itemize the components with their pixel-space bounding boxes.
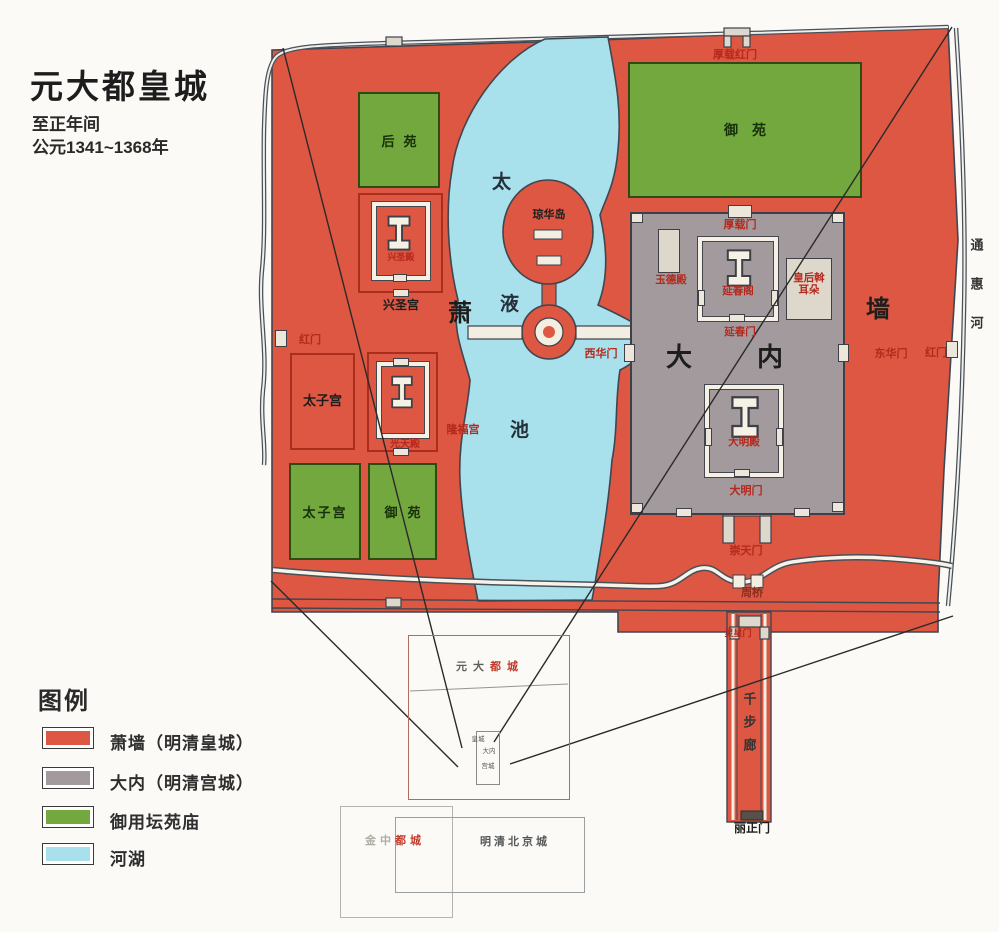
yanchun-side-gate xyxy=(771,290,778,306)
donghua-gate-label: 东华门 xyxy=(868,348,914,361)
danei-south-minor-gate xyxy=(676,508,692,517)
xihua-gate xyxy=(624,344,635,362)
inset-yuandadu-pre: 元大 xyxy=(456,661,490,673)
xiaoqiang-label-qiang: 墙 xyxy=(866,296,891,324)
lingxing-gate-label: 灵星门 xyxy=(716,628,760,638)
legend-swatch-xiaoqiang-fill xyxy=(46,731,90,745)
legend-label-danei: 大内（明清宫城） xyxy=(110,769,254,794)
danei-south-minor-gate xyxy=(794,508,810,517)
damingdian-hall-icon xyxy=(727,393,763,441)
houzai-gate xyxy=(728,205,752,218)
inset-huangcheng-label: 皇城 xyxy=(463,733,493,743)
tonghui-river-label: 通惠河 xyxy=(964,238,988,355)
danei-label-nei: 内 xyxy=(757,343,783,373)
danei-label-da: 大 xyxy=(666,343,692,373)
daming-gate-label: 大明门 xyxy=(722,485,770,498)
guangtiandian-hall-icon xyxy=(388,372,416,412)
hong-gate-west xyxy=(275,330,287,347)
yuyuan-north-label: 御苑 xyxy=(710,120,780,140)
zhou-bridge-label: 周桥 xyxy=(734,587,770,600)
inset-yuandadu-suf: 都城 xyxy=(490,661,524,673)
title-years: 公元1341~1368年 xyxy=(32,133,169,158)
legend-label-xiaoqiang: 萧墙（明清皇城） xyxy=(110,729,254,754)
xingsheng-inner-gate xyxy=(393,274,407,282)
yudedian-label: 玉德殿 xyxy=(650,274,692,286)
xingsheng-outer-gate xyxy=(393,289,409,297)
lake-label-tai: 太 xyxy=(492,172,511,194)
inset-yuandadu-label: 元大都城 xyxy=(440,658,540,674)
lake-label-ye: 液 xyxy=(500,294,519,316)
empress-ordo-label: 皇后斡耳朵 xyxy=(791,272,827,296)
daming-side-gate xyxy=(705,428,712,446)
south-wall-gate xyxy=(386,598,401,607)
hong-gate-west-label: 红门 xyxy=(292,334,328,347)
donghua-gate xyxy=(838,344,849,362)
taizigong-south-label: 太子宫 xyxy=(302,502,347,521)
legend-swatch-gardens xyxy=(42,806,94,828)
round-islet-center xyxy=(543,326,555,338)
hong-gate-east-label: 红门 xyxy=(918,347,954,360)
taizigong-north-label: 太子宫 xyxy=(303,394,342,409)
xingshenggong-label: 兴圣宫 xyxy=(375,299,427,313)
island-terrace xyxy=(537,256,561,265)
lake-label-chi: 池 xyxy=(510,420,529,442)
tonghui-river-text: 通惠河 xyxy=(967,238,986,355)
island-terrace xyxy=(534,230,562,239)
danei-corner-tower xyxy=(631,213,643,223)
legend-label-gardens: 御用坛苑庙 xyxy=(110,808,200,833)
legend-swatch-danei xyxy=(42,767,94,789)
houzai-hong-gate-label: 厚载红门 xyxy=(700,49,770,62)
qianbulang-label: 千步廊 xyxy=(736,692,762,761)
inset-jinzhongdu-pre: 金中 xyxy=(365,835,395,847)
guangtiandian-label: 光天殿 xyxy=(382,439,428,451)
inset-mingqing-label: 明清北京城 xyxy=(455,833,575,849)
yanchun-side-gate xyxy=(698,290,705,306)
legend-swatch-danei-fill xyxy=(46,771,90,785)
danei-corner-tower xyxy=(832,502,844,512)
houyuan-garden: 后苑 xyxy=(358,92,440,188)
title-era: 至正年间 xyxy=(32,110,100,135)
yuyuan-north-garden: 御苑 xyxy=(628,62,862,198)
yanchun-gate-label: 延春门 xyxy=(718,326,762,338)
east-bridge xyxy=(576,326,632,339)
longfugong-label: 隆福宫 xyxy=(440,424,486,437)
west-bridge xyxy=(468,326,522,339)
qianbulang-text: 千步廊 xyxy=(740,692,759,761)
yuan-dadu-imperial-city-map: 后苑 御苑 太子宫 御苑 太子宫 xyxy=(0,0,999,932)
daming-side-gate xyxy=(776,428,783,446)
north-wall-gate xyxy=(386,37,402,46)
inset-danei-label: 大内 xyxy=(477,745,501,755)
yuyuan-south-garden: 御苑 xyxy=(368,463,437,560)
houyuan-label: 后苑 xyxy=(372,131,425,150)
legend-label-water: 河湖 xyxy=(110,845,146,870)
daming-south-gate xyxy=(734,469,750,477)
lizheng-gate xyxy=(741,811,763,820)
longfu-top-gate xyxy=(393,358,409,366)
danei-corner-tower xyxy=(832,213,844,223)
lizheng-gate-label: 丽正门 xyxy=(726,822,778,836)
yanchunge-label: 延春阁 xyxy=(713,285,763,297)
legend-swatch-water xyxy=(42,843,94,865)
xiaoqiang-label-xiao: 萧 xyxy=(448,300,473,328)
qionghua-island-label: 琼华岛 xyxy=(523,209,575,222)
xingshengdian-hall-icon xyxy=(384,212,414,254)
xingshengdian-label: 兴圣殿 xyxy=(377,252,425,262)
yudedian-hall xyxy=(658,229,680,273)
damingdian-label: 大明殿 xyxy=(720,436,768,448)
taizigong-south-garden: 太子宫 xyxy=(289,463,361,560)
legend-swatch-gardens-fill xyxy=(46,810,90,824)
yuyuan-south-label: 御苑 xyxy=(374,502,430,521)
legend-swatch-water-fill xyxy=(46,847,90,861)
yanchunge-hall-icon xyxy=(723,246,755,290)
legend-swatch-xiaoqiang xyxy=(42,727,94,749)
inset-gongcheng-label: 宫城 xyxy=(476,760,500,770)
xihua-gate-label: 西华门 xyxy=(578,348,624,361)
legend-heading: 图例 xyxy=(38,681,90,716)
danei-corner-tower xyxy=(631,503,643,513)
chongtian-gate-label: 崇天门 xyxy=(722,545,770,558)
inset-jinzhongdu-label: 金中都城 xyxy=(352,832,438,848)
yanchun-south-gate xyxy=(729,314,745,322)
houzai-gate-label: 厚载门 xyxy=(716,219,764,232)
page-title: 元大都皇城 xyxy=(30,60,210,108)
taizigong-north-compound: 太子宫 xyxy=(290,353,355,450)
inset-jinzhongdu-suf: 都城 xyxy=(395,835,425,847)
inset-mingqing-outline xyxy=(395,817,585,893)
